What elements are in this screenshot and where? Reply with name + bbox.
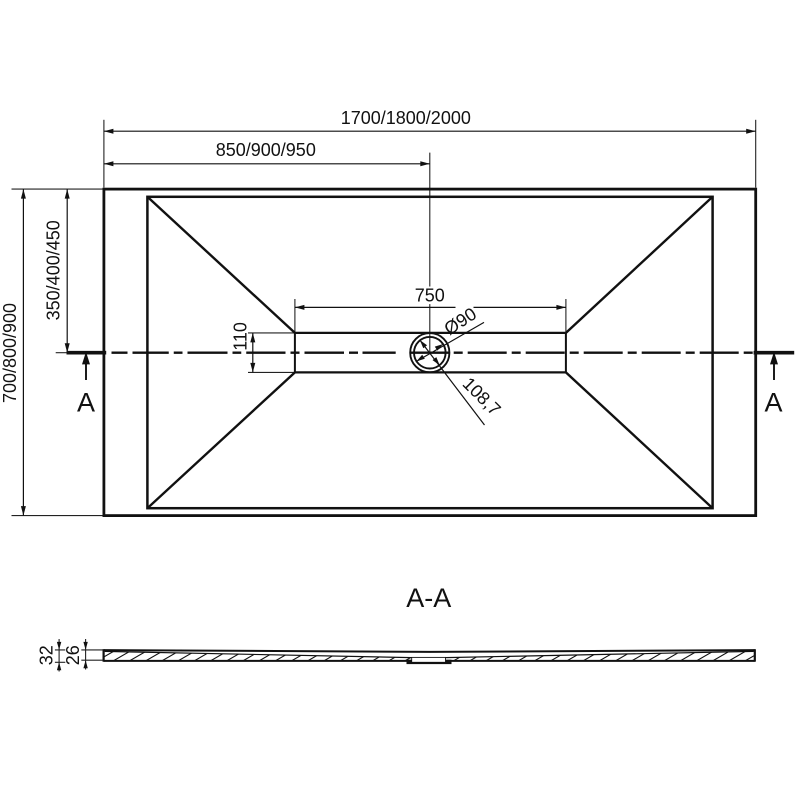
svg-text:350/400/450: 350/400/450 <box>43 220 63 320</box>
svg-text:750: 750 <box>415 286 445 306</box>
svg-text:A: A <box>764 387 782 417</box>
svg-text:32: 32 <box>36 645 56 665</box>
svg-text:A-A: A-A <box>406 583 451 613</box>
svg-text:26: 26 <box>63 645 83 665</box>
svg-text:1700/1800/2000: 1700/1800/2000 <box>341 108 471 128</box>
svg-text:850/900/950: 850/900/950 <box>216 140 316 160</box>
svg-text:110: 110 <box>231 322 251 351</box>
svg-text:A: A <box>77 387 95 417</box>
svg-text:700/800/900: 700/800/900 <box>0 303 20 403</box>
